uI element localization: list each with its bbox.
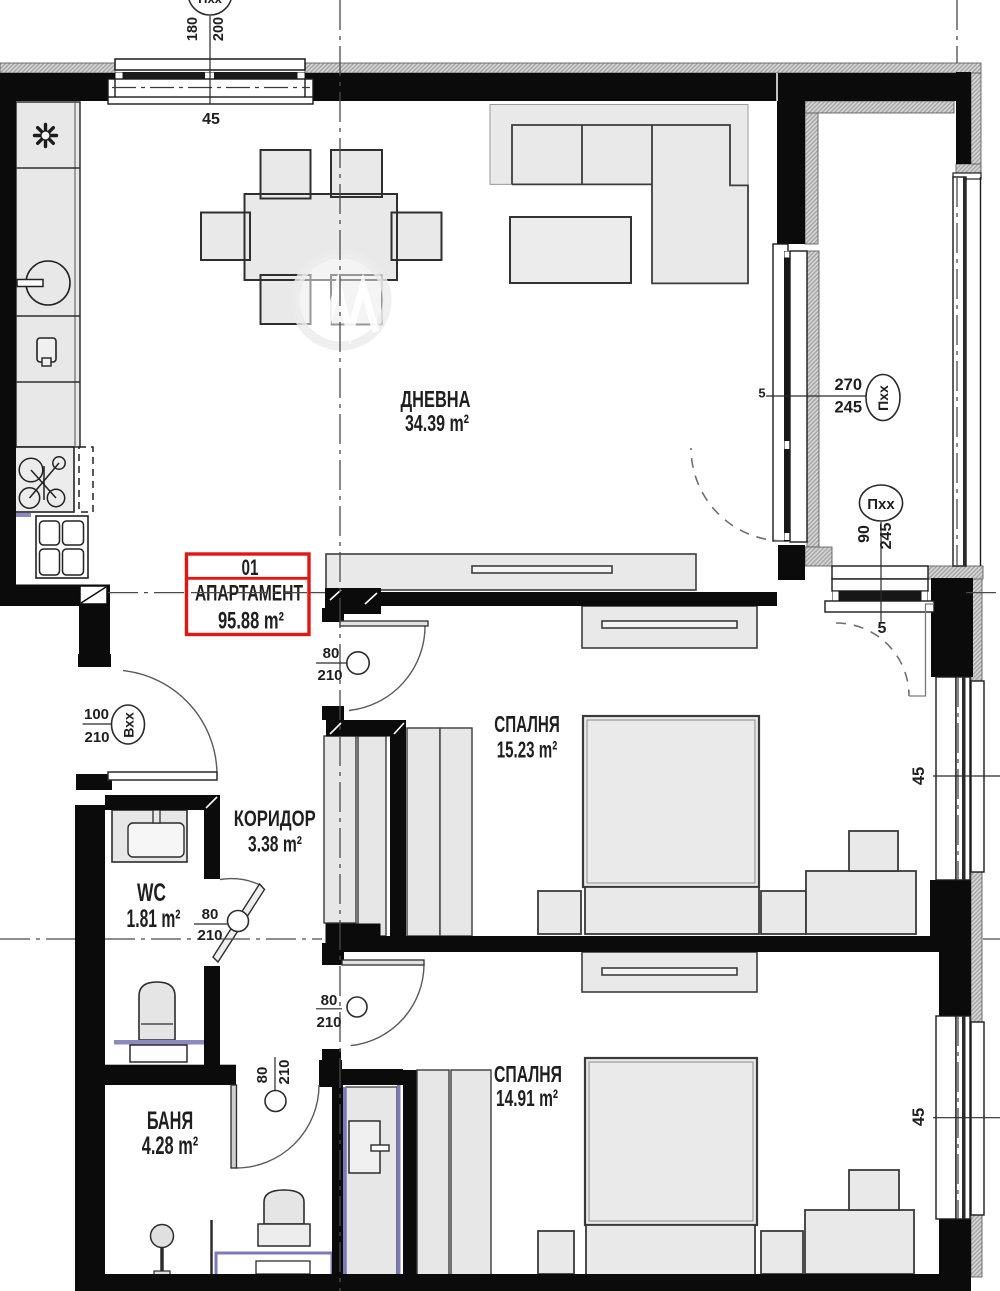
svg-text:245: 245 xyxy=(834,399,862,417)
svg-text:95.88 m²: 95.88 m² xyxy=(218,608,284,635)
svg-text:100: 100 xyxy=(84,706,109,723)
svg-text:210: 210 xyxy=(84,729,109,746)
svg-text:Вхх: Вхх xyxy=(121,712,137,738)
svg-text:5: 5 xyxy=(758,386,765,401)
svg-text:210: 210 xyxy=(316,1014,341,1031)
svg-text:14.91 m²: 14.91 m² xyxy=(496,1085,558,1111)
svg-text:15.23 m²: 15.23 m² xyxy=(497,737,558,763)
svg-text:245: 245 xyxy=(878,523,895,550)
svg-text:180: 180 xyxy=(185,17,201,41)
svg-text:WC: WC xyxy=(137,879,166,907)
svg-text:КОРИДОР: КОРИДОР xyxy=(234,806,316,831)
svg-text:3.38 m²: 3.38 m² xyxy=(248,832,302,857)
svg-text:45: 45 xyxy=(910,767,928,785)
svg-text:90: 90 xyxy=(856,525,873,543)
svg-text:Пхх: Пхх xyxy=(875,385,891,411)
svg-text:4.28 m²: 4.28 m² xyxy=(142,1132,199,1160)
svg-text:45: 45 xyxy=(910,1108,928,1126)
svg-text:01: 01 xyxy=(242,555,259,580)
svg-text:80: 80 xyxy=(323,645,340,662)
svg-text:СПАЛНЯ: СПАЛНЯ xyxy=(494,1061,562,1087)
svg-text:34.39 m²: 34.39 m² xyxy=(405,410,469,436)
svg-text:1.81 m²: 1.81 m² xyxy=(127,905,181,933)
svg-text:ДНЕВНА: ДНЕВНА xyxy=(401,386,471,412)
svg-text:80: 80 xyxy=(254,1067,271,1084)
svg-text:Пхх: Пхх xyxy=(867,496,895,513)
svg-text:270: 270 xyxy=(834,376,862,394)
svg-text:210: 210 xyxy=(317,667,342,684)
svg-text:210: 210 xyxy=(197,927,222,944)
svg-text:5: 5 xyxy=(878,620,887,637)
svg-text:Пхх: Пхх xyxy=(198,0,223,6)
svg-text:80: 80 xyxy=(202,906,219,923)
svg-text:200: 200 xyxy=(211,17,227,41)
svg-text:80: 80 xyxy=(321,992,338,1009)
svg-text:БАНЯ: БАНЯ xyxy=(147,1107,193,1135)
svg-text:45: 45 xyxy=(202,111,220,128)
svg-text:СПАЛНЯ: СПАЛНЯ xyxy=(494,711,560,737)
svg-text:210: 210 xyxy=(276,1059,293,1084)
